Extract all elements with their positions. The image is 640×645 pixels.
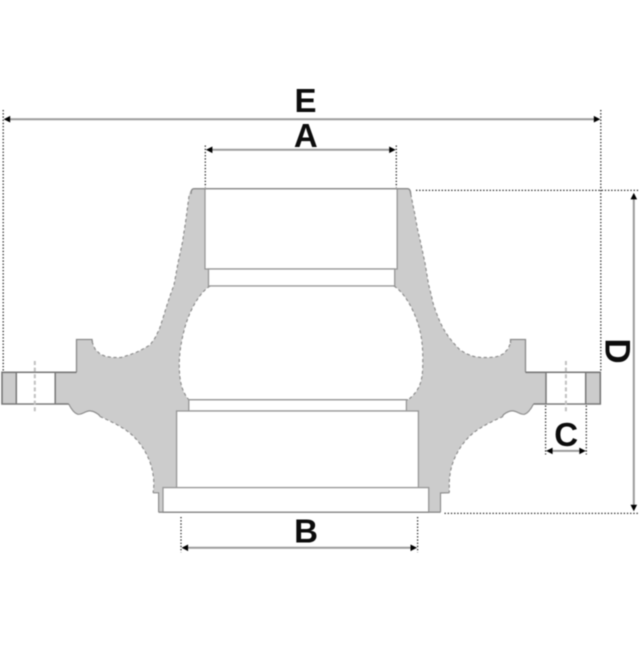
- svg-text:C: C: [554, 416, 578, 453]
- svg-text:A: A: [294, 117, 318, 154]
- svg-text:D: D: [597, 338, 636, 363]
- svg-text:B: B: [294, 513, 318, 550]
- svg-text:E: E: [294, 82, 316, 119]
